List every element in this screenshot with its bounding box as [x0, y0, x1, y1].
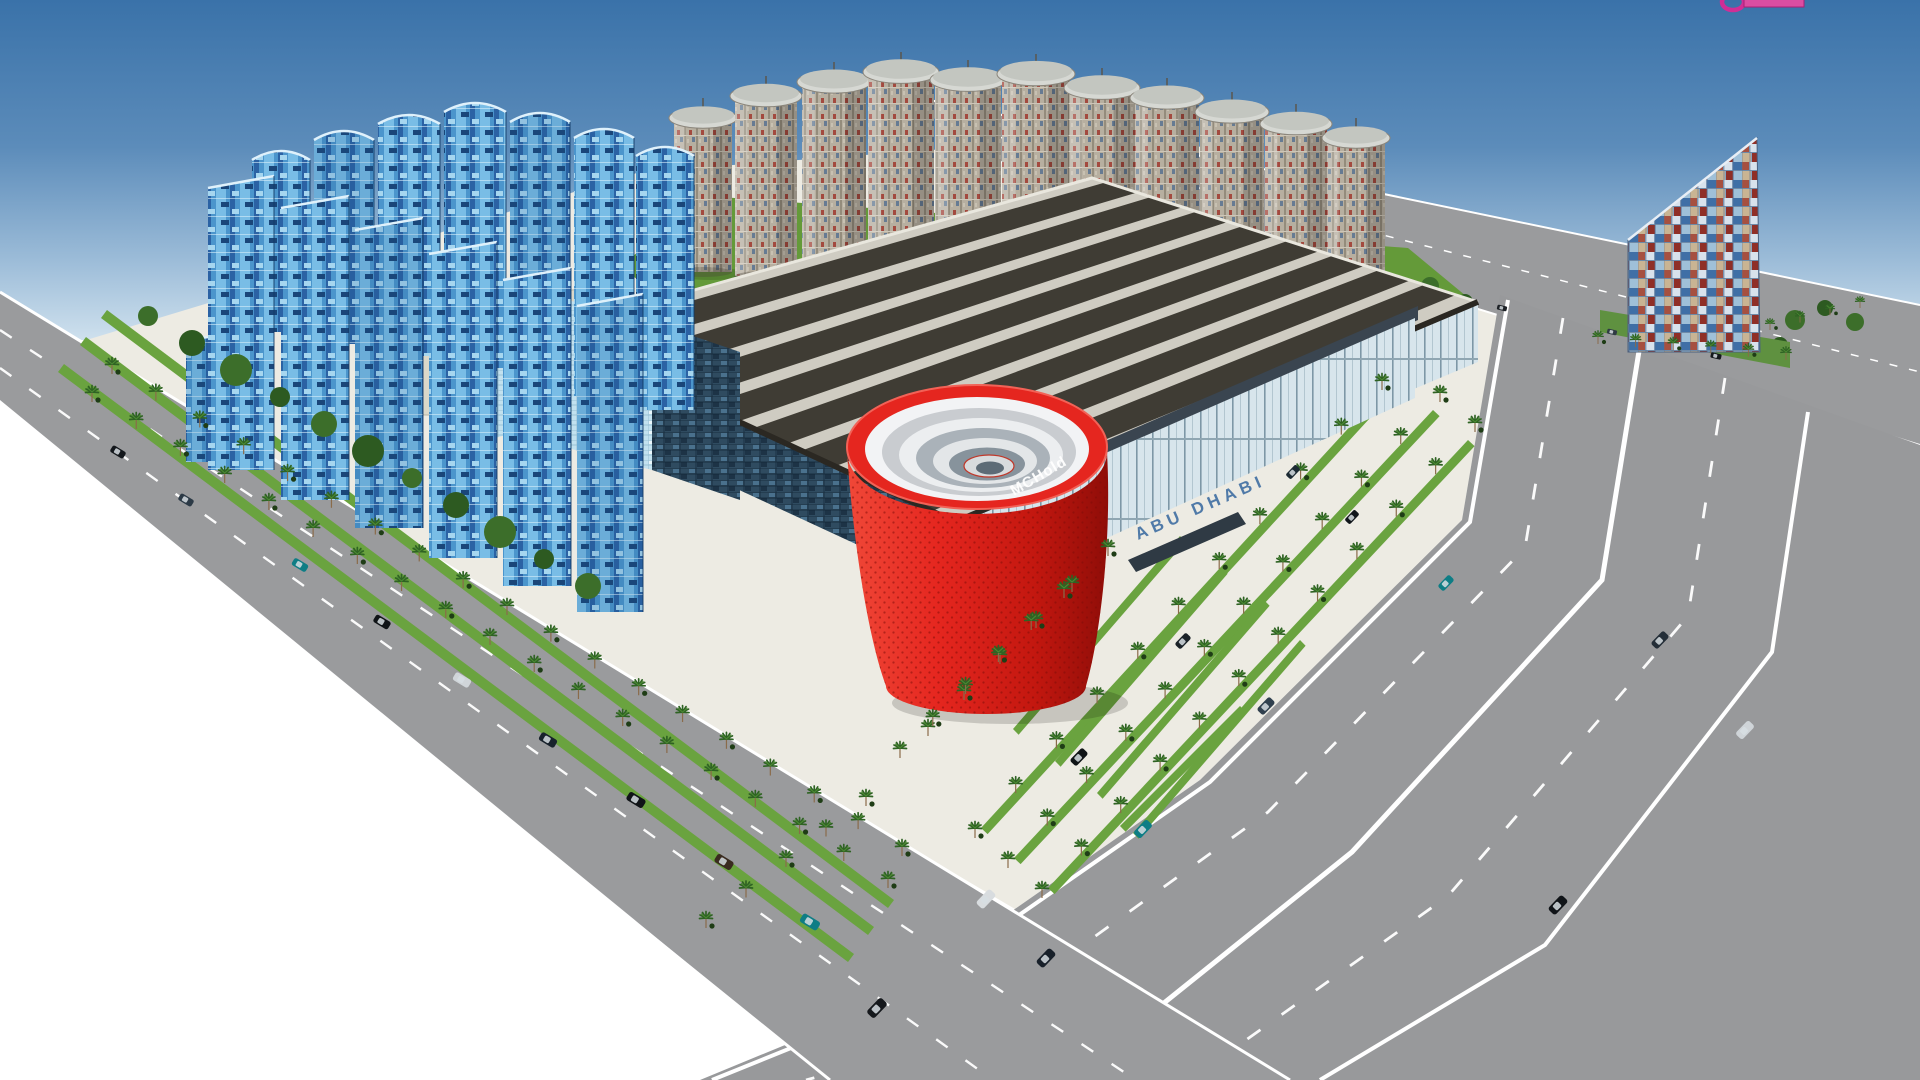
shrub: [1002, 657, 1007, 662]
shrub: [1385, 385, 1390, 390]
tree: [220, 354, 252, 386]
shrub: [291, 477, 296, 482]
shrub: [1321, 597, 1326, 602]
shrub: [1304, 475, 1309, 480]
shrub: [554, 637, 559, 642]
red-drum-building: MCHold: [847, 385, 1128, 724]
shrub: [789, 862, 794, 867]
shrub: [626, 721, 631, 726]
shrub: [1039, 623, 1044, 628]
shrub: [803, 829, 808, 834]
shrub: [1400, 512, 1405, 517]
shrub: [1060, 744, 1065, 749]
shrub: [1286, 567, 1291, 572]
shrub: [967, 695, 972, 700]
shrub: [1051, 821, 1056, 826]
tree: [138, 306, 158, 326]
tree: [575, 573, 601, 599]
shrub: [1085, 851, 1090, 856]
tree: [352, 435, 384, 467]
shrub: [936, 721, 941, 726]
shrub: [1602, 340, 1606, 344]
shrub: [1223, 565, 1228, 570]
tree: [179, 330, 205, 356]
shrub: [1208, 652, 1213, 657]
shrub: [449, 613, 454, 618]
shrub: [818, 798, 823, 803]
blue-tower: [281, 196, 349, 500]
tree: [270, 387, 290, 407]
rendering-canvas: ABU DHABI MCHold: [0, 0, 1920, 1080]
shrub: [1242, 682, 1247, 687]
shrub: [115, 369, 120, 374]
tree: [484, 516, 516, 548]
shrub: [1478, 427, 1483, 432]
shrub: [467, 584, 472, 589]
shrub: [1067, 593, 1072, 598]
shrub: [379, 530, 384, 535]
shrub: [1677, 346, 1681, 350]
shrub: [642, 691, 647, 696]
watermark-bar: [1744, 0, 1804, 7]
shrub: [1834, 312, 1838, 316]
blue-tower: [208, 176, 274, 470]
blue-tower: [636, 147, 694, 410]
shrub: [891, 883, 896, 888]
architectural-rendering: ABU DHABI MCHold: [0, 0, 1920, 1080]
shrub: [203, 423, 208, 428]
tree: [311, 411, 337, 437]
shrub: [978, 833, 983, 838]
shrub: [715, 775, 720, 780]
blue-tower: [577, 294, 643, 612]
tree: [1846, 313, 1864, 331]
shrub: [1141, 654, 1146, 659]
shrub: [538, 667, 543, 672]
shrub: [1129, 736, 1134, 741]
shrub: [905, 851, 910, 856]
shrub: [1443, 397, 1448, 402]
tree: [443, 492, 469, 518]
tree: [534, 549, 554, 569]
shrub: [730, 744, 735, 749]
shrub: [95, 397, 100, 402]
shrub: [1163, 766, 1168, 771]
shrub: [1774, 326, 1778, 330]
shrub: [869, 801, 874, 806]
drum-roof-rings: [847, 385, 1107, 509]
shrub: [184, 451, 189, 456]
shrub: [1111, 551, 1116, 556]
shrub: [272, 505, 277, 510]
shrub: [1752, 353, 1756, 357]
shrub: [709, 923, 714, 928]
shrub: [1365, 482, 1370, 487]
tree: [402, 468, 422, 488]
shrub: [361, 559, 366, 564]
